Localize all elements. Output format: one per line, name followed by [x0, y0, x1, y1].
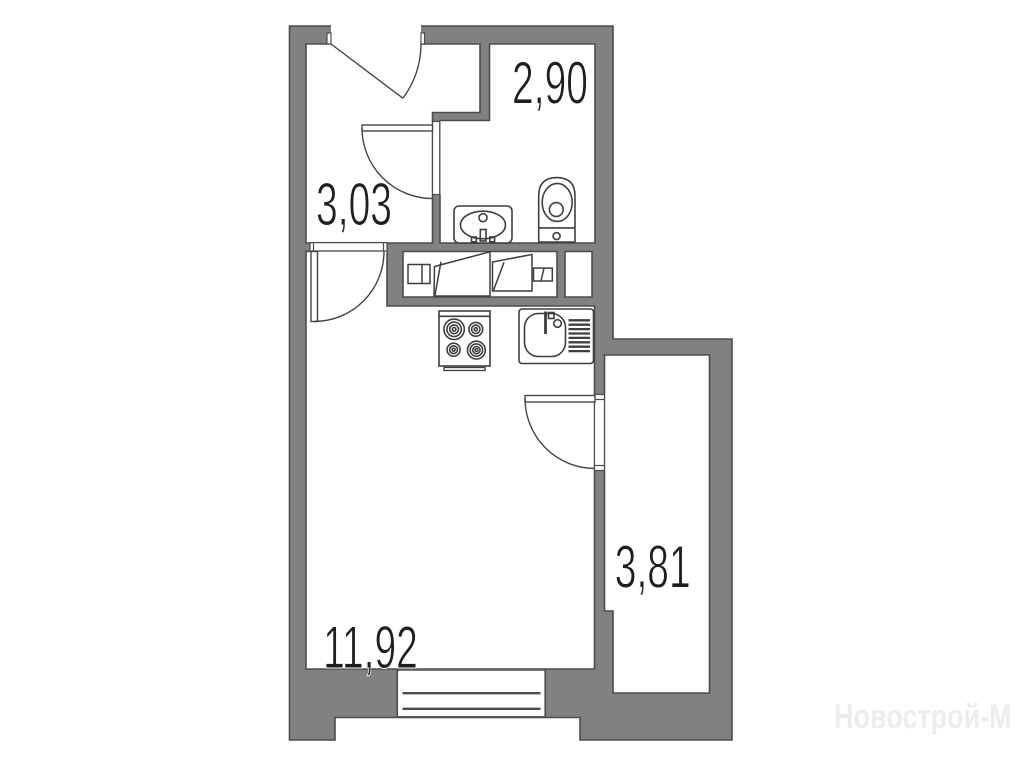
svg-text:3,03: 3,03 — [316, 171, 392, 239]
svg-text:11,92: 11,92 — [323, 613, 418, 681]
svg-text:3,81: 3,81 — [615, 533, 691, 601]
svg-text:2,90: 2,90 — [512, 49, 588, 117]
svg-text:Новострой-М: Новострой-М — [834, 697, 1012, 736]
